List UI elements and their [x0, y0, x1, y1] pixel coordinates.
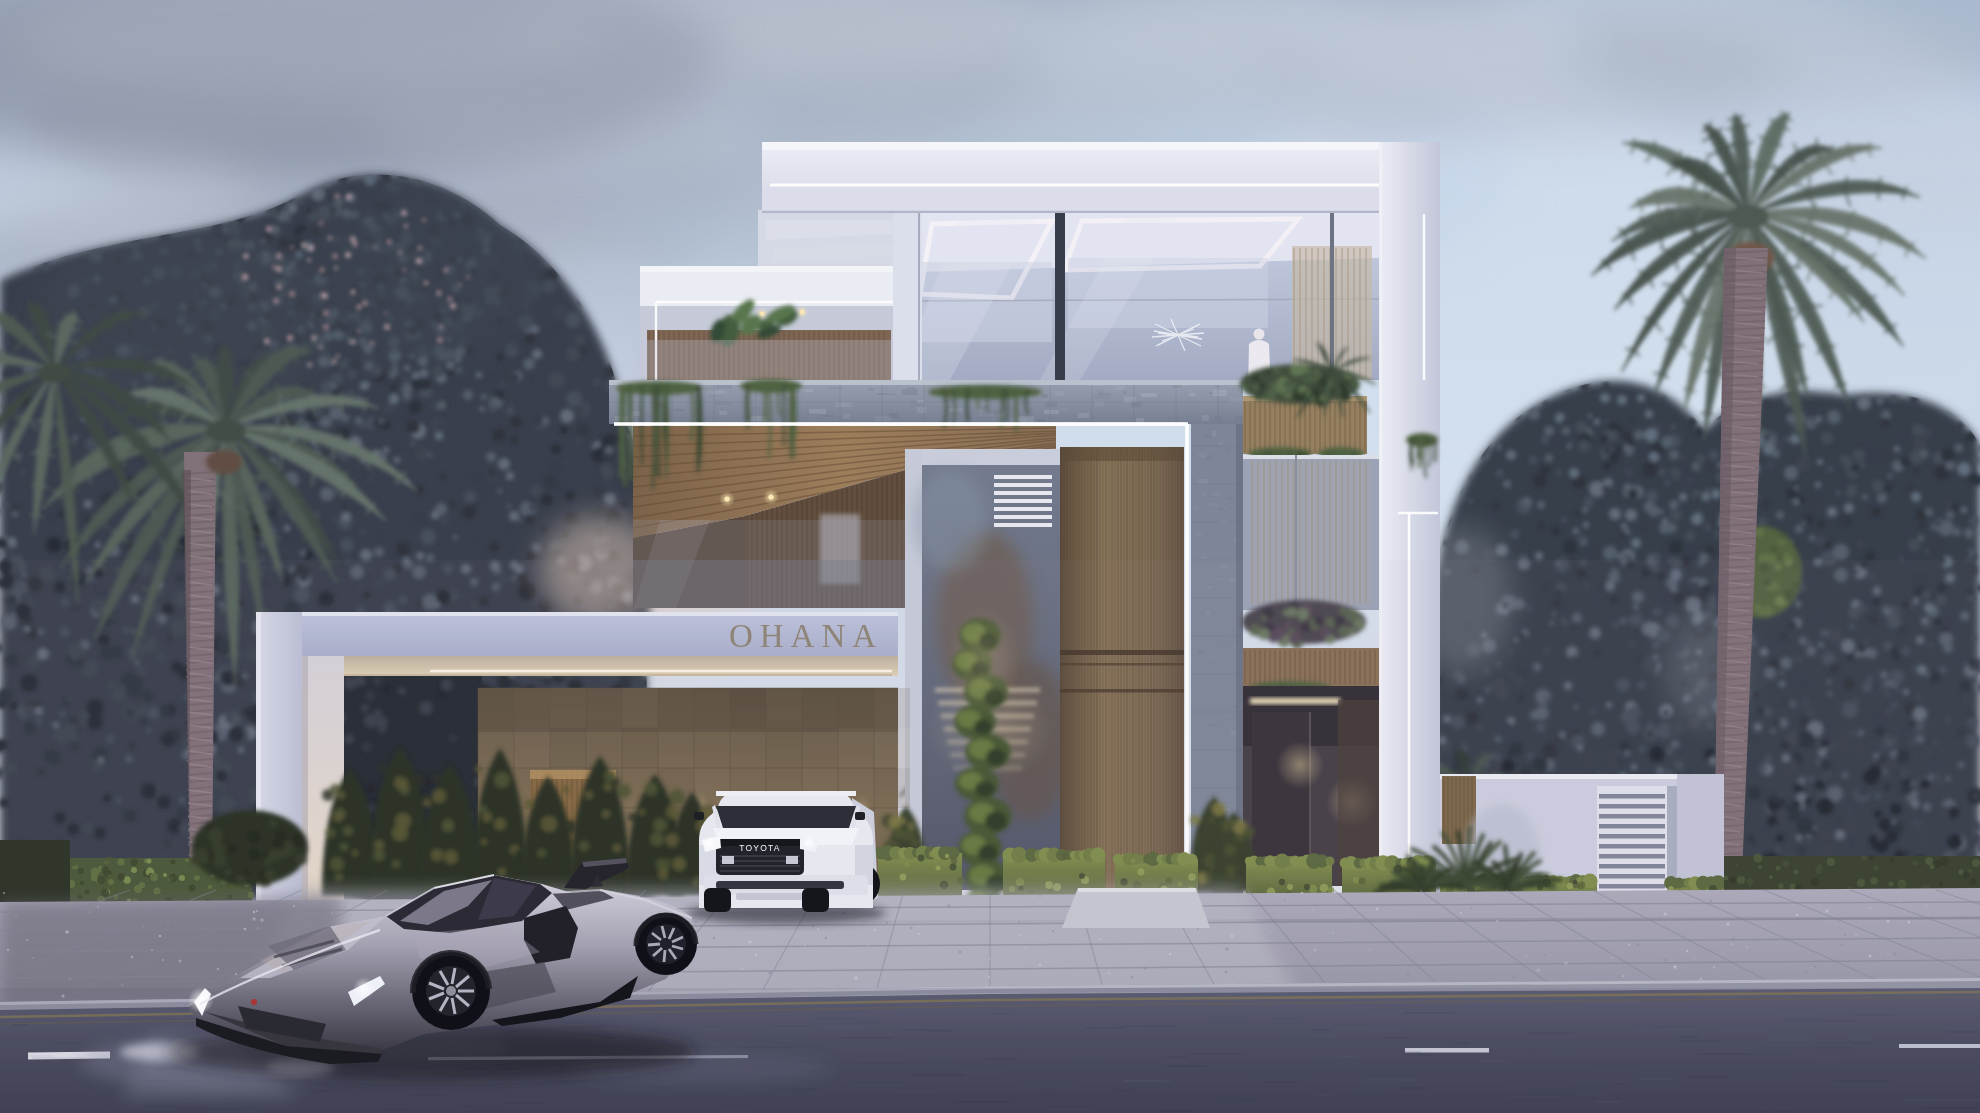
svg-text:TOYOTA: TOYOTA: [739, 843, 780, 853]
